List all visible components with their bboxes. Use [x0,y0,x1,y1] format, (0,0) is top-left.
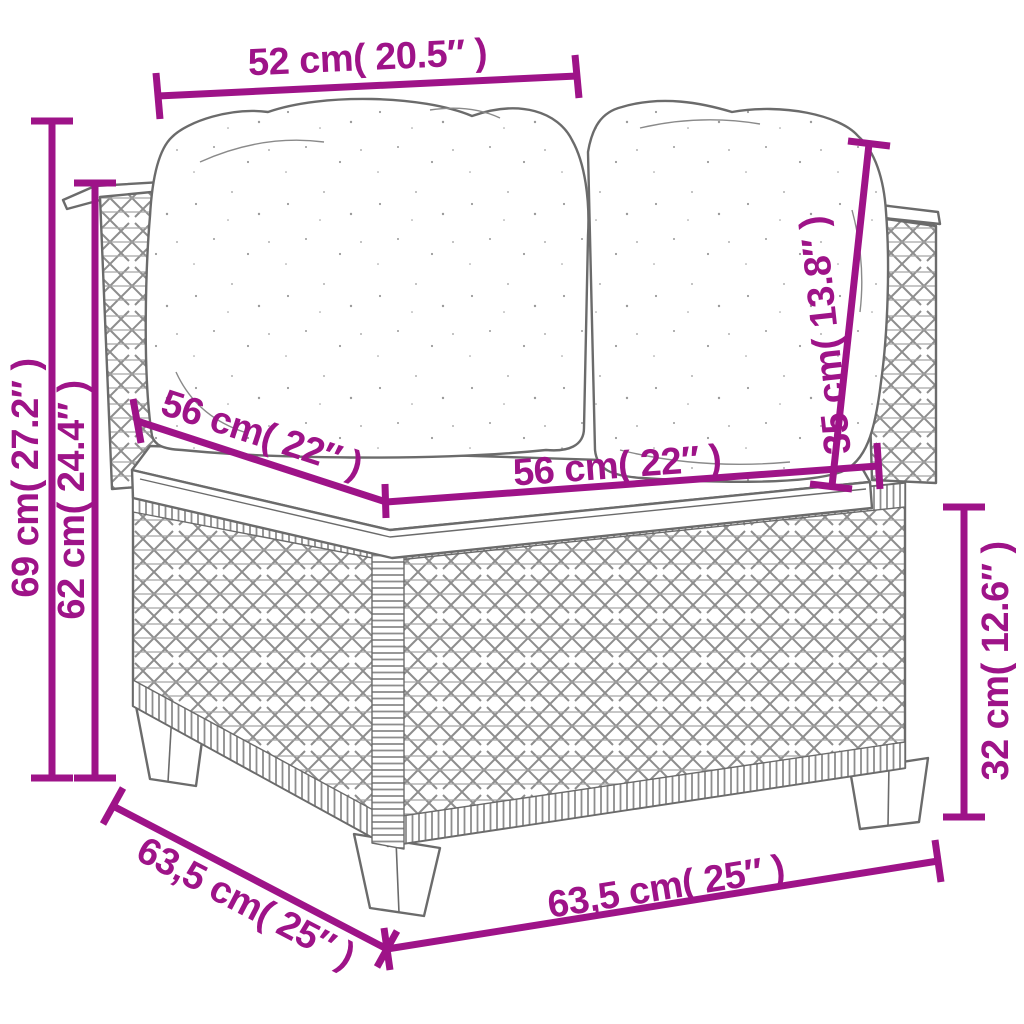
dim-label-top-back-width: 52 cm( 20.5″ ) [247,32,488,85]
dimension-diagram: 52 cm( 20.5″ ) 69 cm( 27.2″ ) 62 cm( 24.… [0,0,1024,1024]
dim-label-total-height: 69 cm( 27.2″ ) [5,358,47,597]
dim-label-base-height: 32 cm( 12.6″ ) [975,541,1017,780]
dim-label-total-depth: 63,5 cm( 25″ ) [130,829,362,977]
dim-label-total-width: 63,5 cm( 25″ ) [545,847,788,926]
diagram-canvas: 52 cm( 20.5″ ) 69 cm( 27.2″ ) 62 cm( 24.… [0,0,1024,1024]
dim-label-back-height: 62 cm( 24.4″ ) [51,380,93,619]
base-corner-strip [372,531,404,849]
